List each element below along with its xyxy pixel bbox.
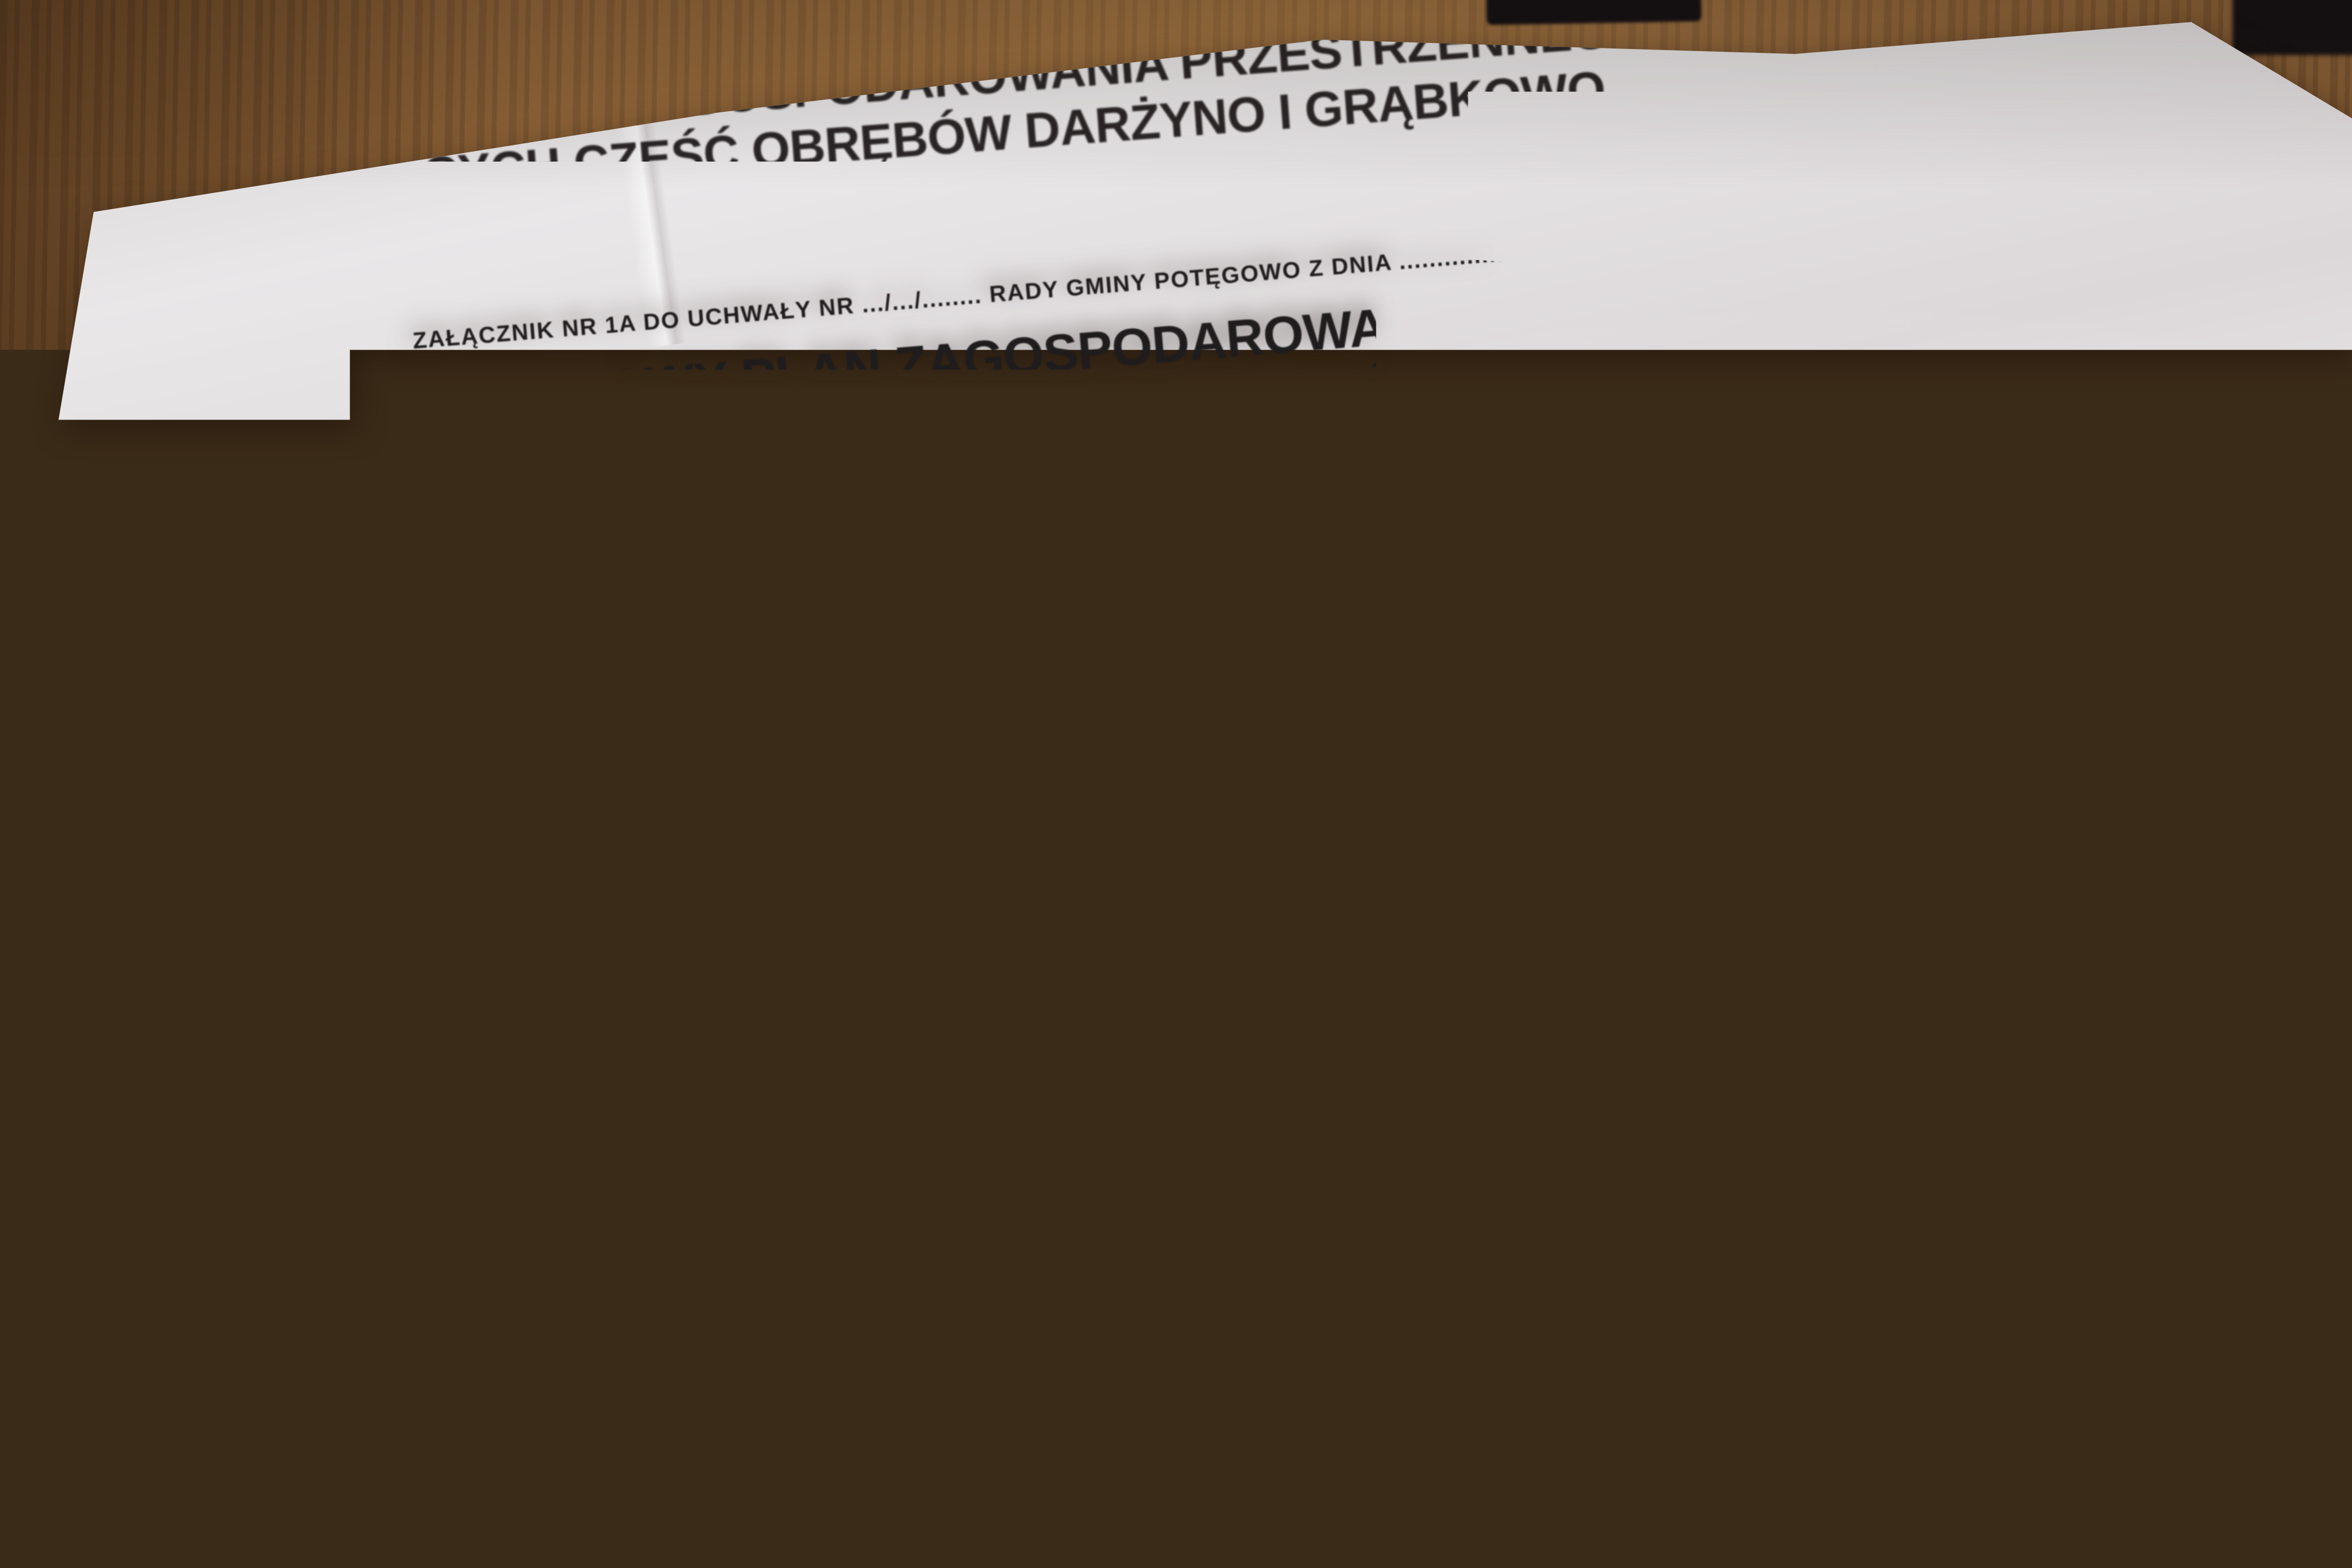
small-sheet-footer-line: OWO (0, 1554, 50, 1568)
photo-of-planning-documents: ZAŁĄCZNIK NR 1B DO UCHWAŁY NR .../.../..… (0, 0, 2352, 1568)
sheet-small-shadow: NA POTĘGOWO PODAROWANIA PRZESTRZENNEGO C… (0, 0, 2352, 1568)
sheet-small: NA POTĘGOWO PODAROWANIA PRZESTRZENNEGO C… (0, 0, 2352, 1568)
